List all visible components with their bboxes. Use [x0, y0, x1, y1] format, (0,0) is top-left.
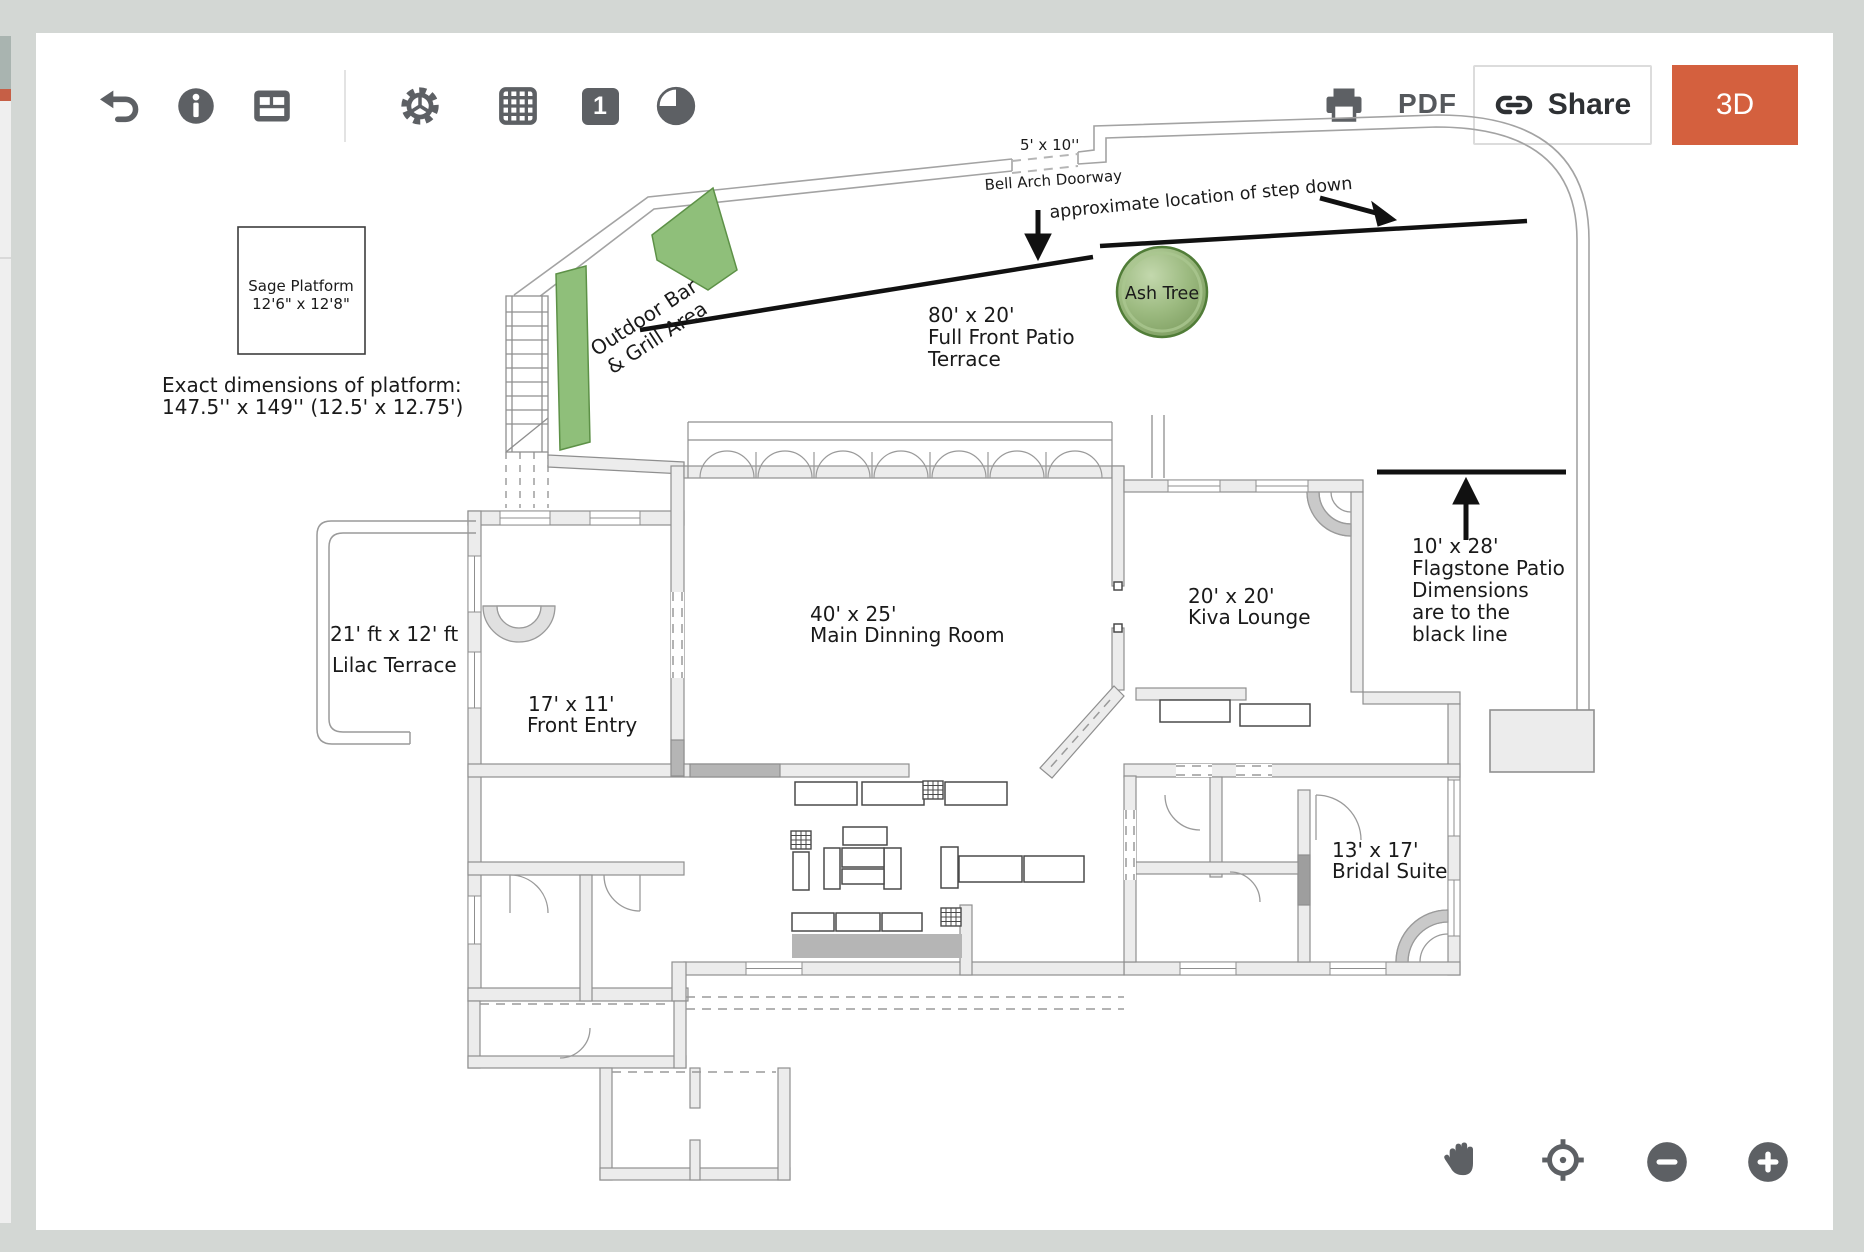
flagstone-line4: black line — [1412, 622, 1508, 646]
bell-arch-label: Bell Arch Doorway — [984, 166, 1123, 194]
flagstone-line1: Flagstone Patio — [1412, 556, 1565, 580]
front-patio-line1: Full Front Patio — [928, 325, 1075, 349]
kiva-lounge-name: Kiva Lounge — [1188, 605, 1311, 629]
pan-hand-icon — [1438, 1139, 1480, 1181]
ash-tree-label: Ash Tree — [1125, 284, 1199, 304]
platform-note-line2: 147.5'' x 149'' (12.5' x 12.75') — [162, 395, 463, 419]
zoom-out-icon — [1646, 1141, 1688, 1183]
front-patio-line2: Terrace — [927, 347, 1001, 371]
annotation-lines — [640, 198, 1566, 540]
center-view-button[interactable] — [1541, 1138, 1585, 1182]
zoom-in-button[interactable] — [1746, 1140, 1790, 1184]
front-patio-size: 80' x 20' — [928, 303, 1014, 327]
zoom-in-icon — [1747, 1141, 1789, 1183]
floorplanner-app: { "ui": { "toolbar": { "icons_left": ["u… — [0, 0, 1864, 1252]
flagstone-line2: Dimensions — [1412, 578, 1529, 602]
flagstone-size: 10' x 28' — [1412, 534, 1498, 558]
front-entry-name: Front Entry — [527, 713, 637, 737]
crosshair-icon — [1541, 1138, 1585, 1182]
bell-arch-size: 5' x 10'' — [1020, 136, 1079, 154]
flagstone-line3: are to the — [1412, 600, 1510, 624]
green-pentagon-planter — [652, 188, 737, 290]
zoom-out-button[interactable] — [1645, 1140, 1689, 1184]
dining-room-name: Main Dinning Room — [810, 623, 1005, 647]
green-strip-planter — [556, 266, 590, 450]
sage-platform-size: 12'6" x 12'8" — [252, 295, 350, 313]
lilac-terrace-size: 21' ft x 12' ft — [330, 622, 458, 646]
platform-note-line1: Exact dimensions of platform: — [162, 373, 462, 397]
floor-plan[interactable]: Sage Platform 12'6" x 12'8" Exact dimens… — [0, 0, 1864, 1252]
lilac-terrace-name: Lilac Terrace — [332, 653, 457, 677]
sage-platform-name: Sage Platform — [248, 277, 354, 295]
sage-platform-box[interactable]: Sage Platform 12'6" x 12'8" — [238, 227, 365, 354]
bridal-suite-name: Bridal Suite — [1332, 859, 1447, 883]
pan-button[interactable] — [1437, 1138, 1481, 1182]
